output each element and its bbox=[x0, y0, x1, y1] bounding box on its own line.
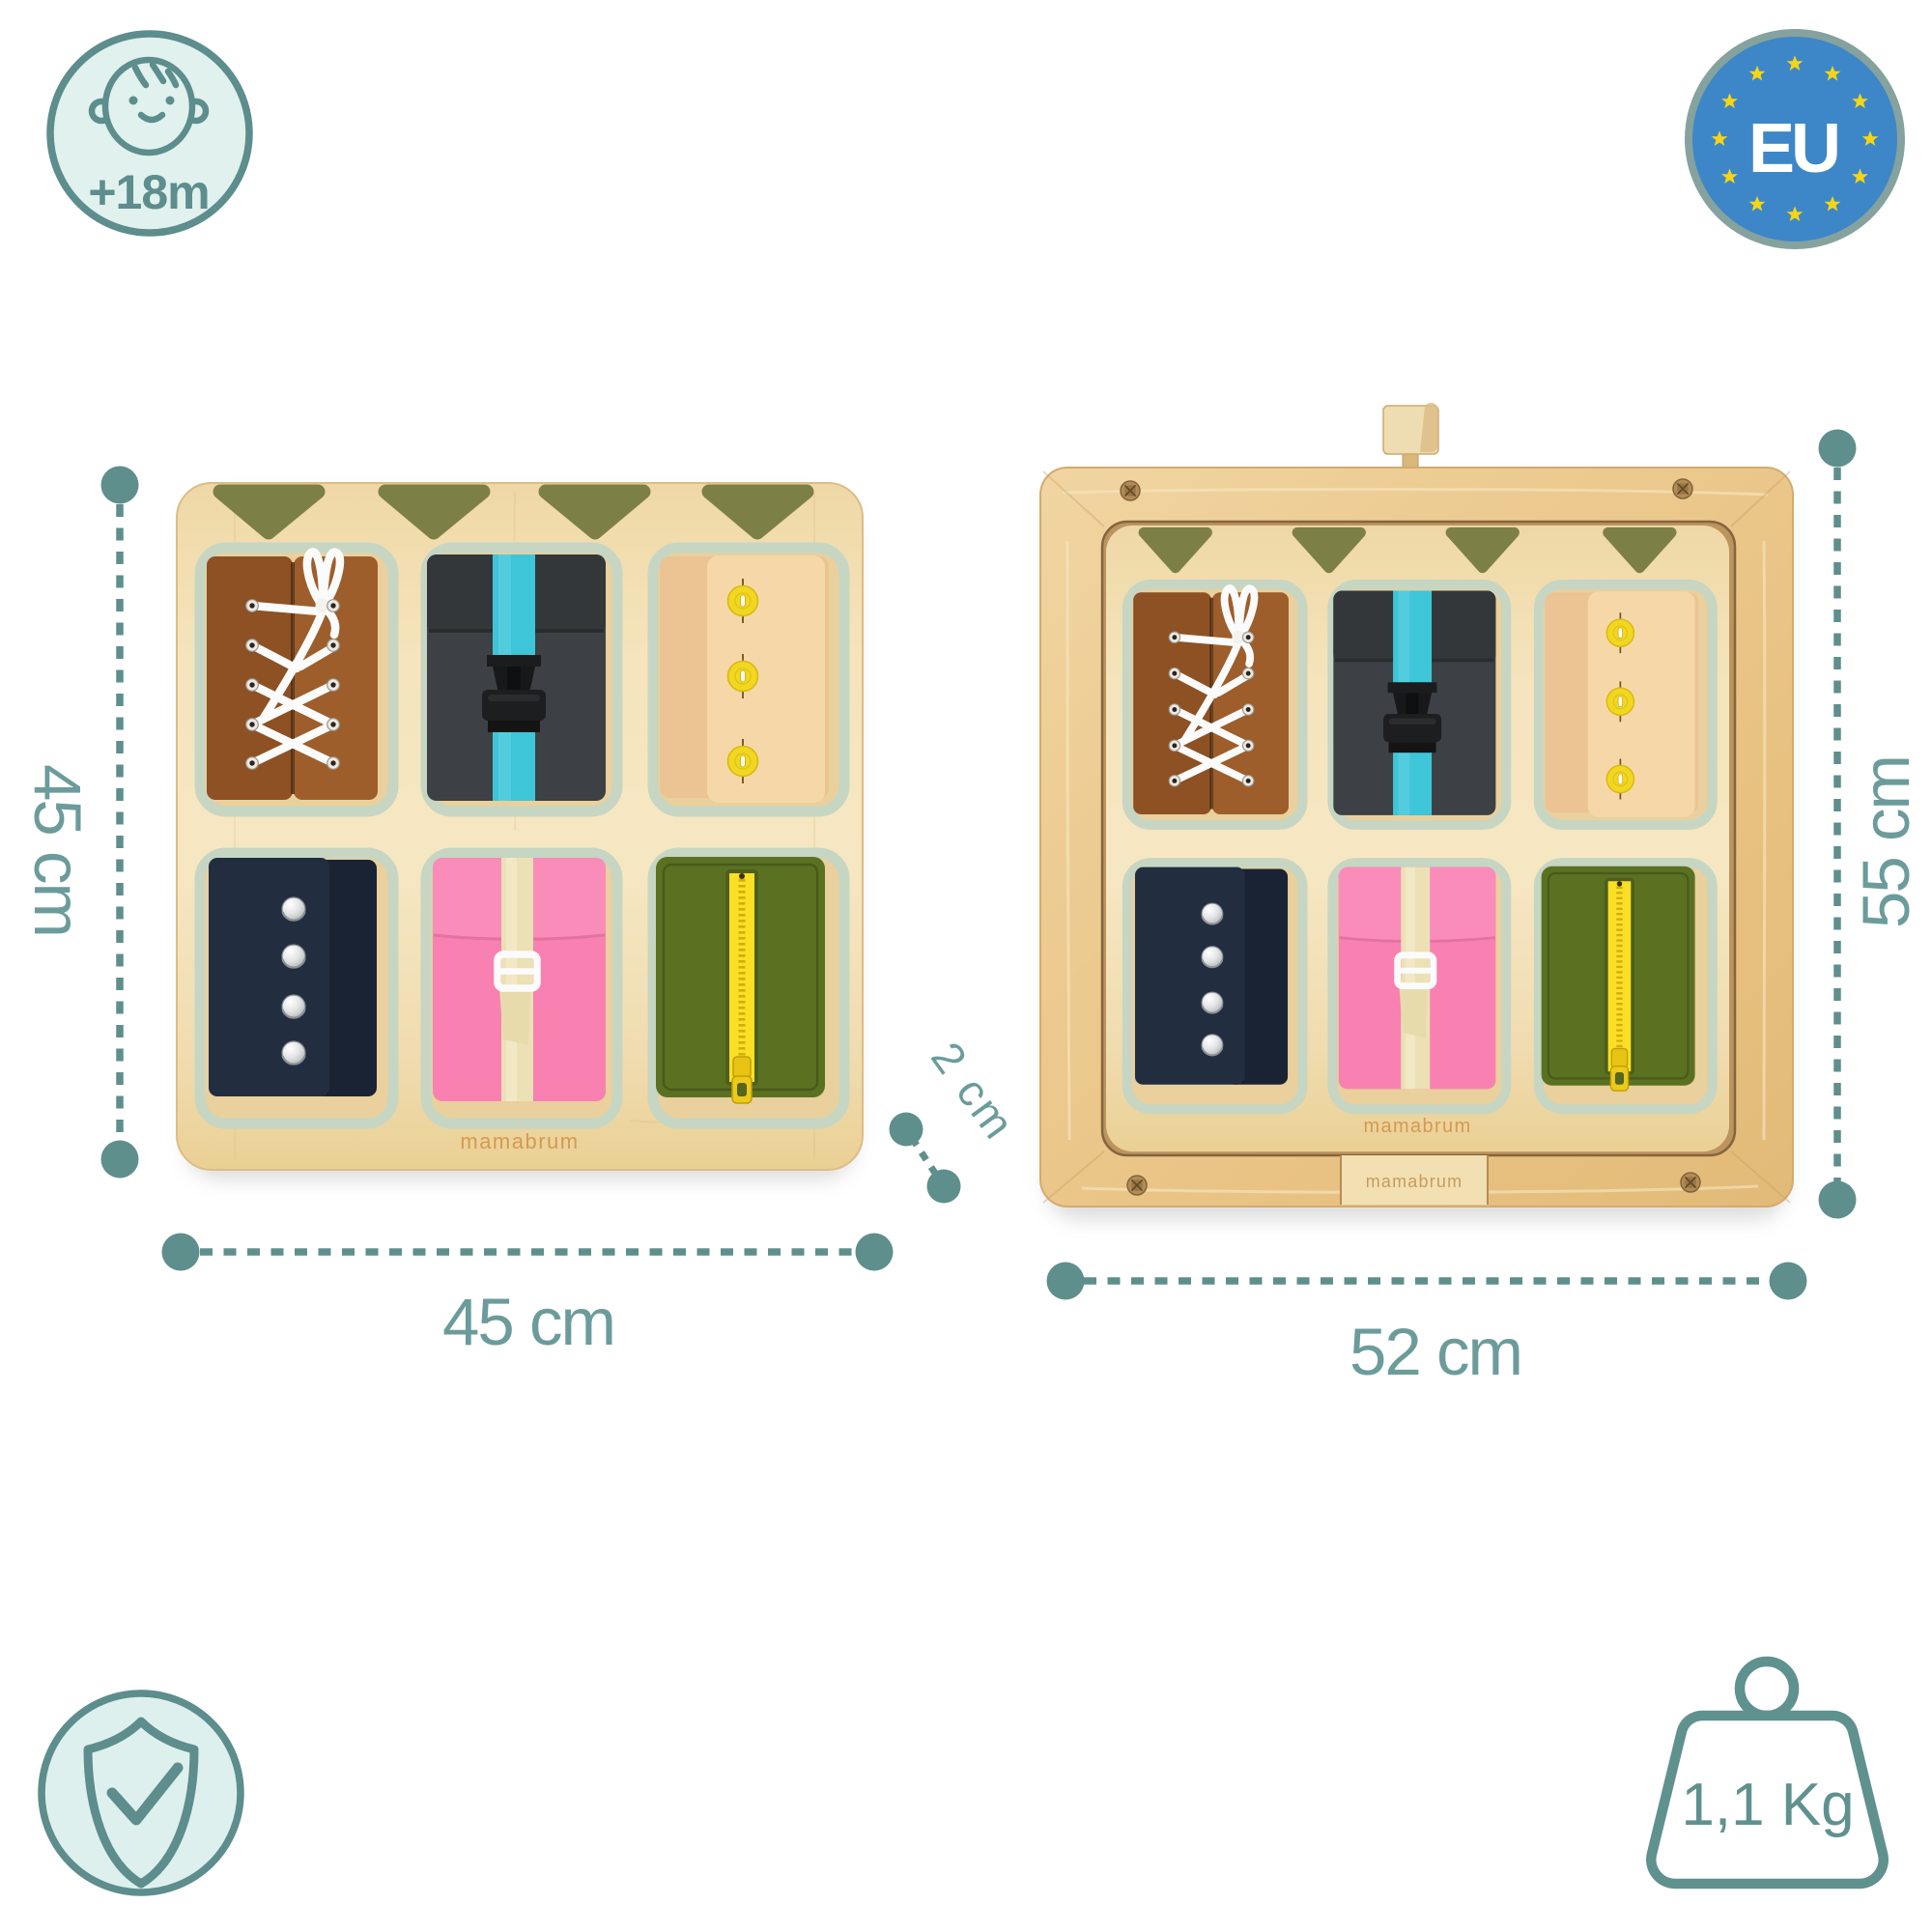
svg-text:2 cm: 2 cm bbox=[922, 1033, 1026, 1150]
svg-text:EU: EU bbox=[1748, 110, 1837, 187]
svg-text:mamabrum: mamabrum bbox=[1366, 1172, 1463, 1191]
svg-text:+18m: +18m bbox=[88, 165, 209, 219]
svg-text:45 cm: 45 cm bbox=[442, 1285, 614, 1359]
svg-text:1,1 Kg: 1,1 Kg bbox=[1681, 1772, 1854, 1838]
svg-text:45 cm: 45 cm bbox=[20, 764, 95, 936]
svg-text:52 cm: 52 cm bbox=[1350, 1315, 1521, 1389]
svg-text:55 cm: 55 cm bbox=[1849, 756, 1923, 928]
